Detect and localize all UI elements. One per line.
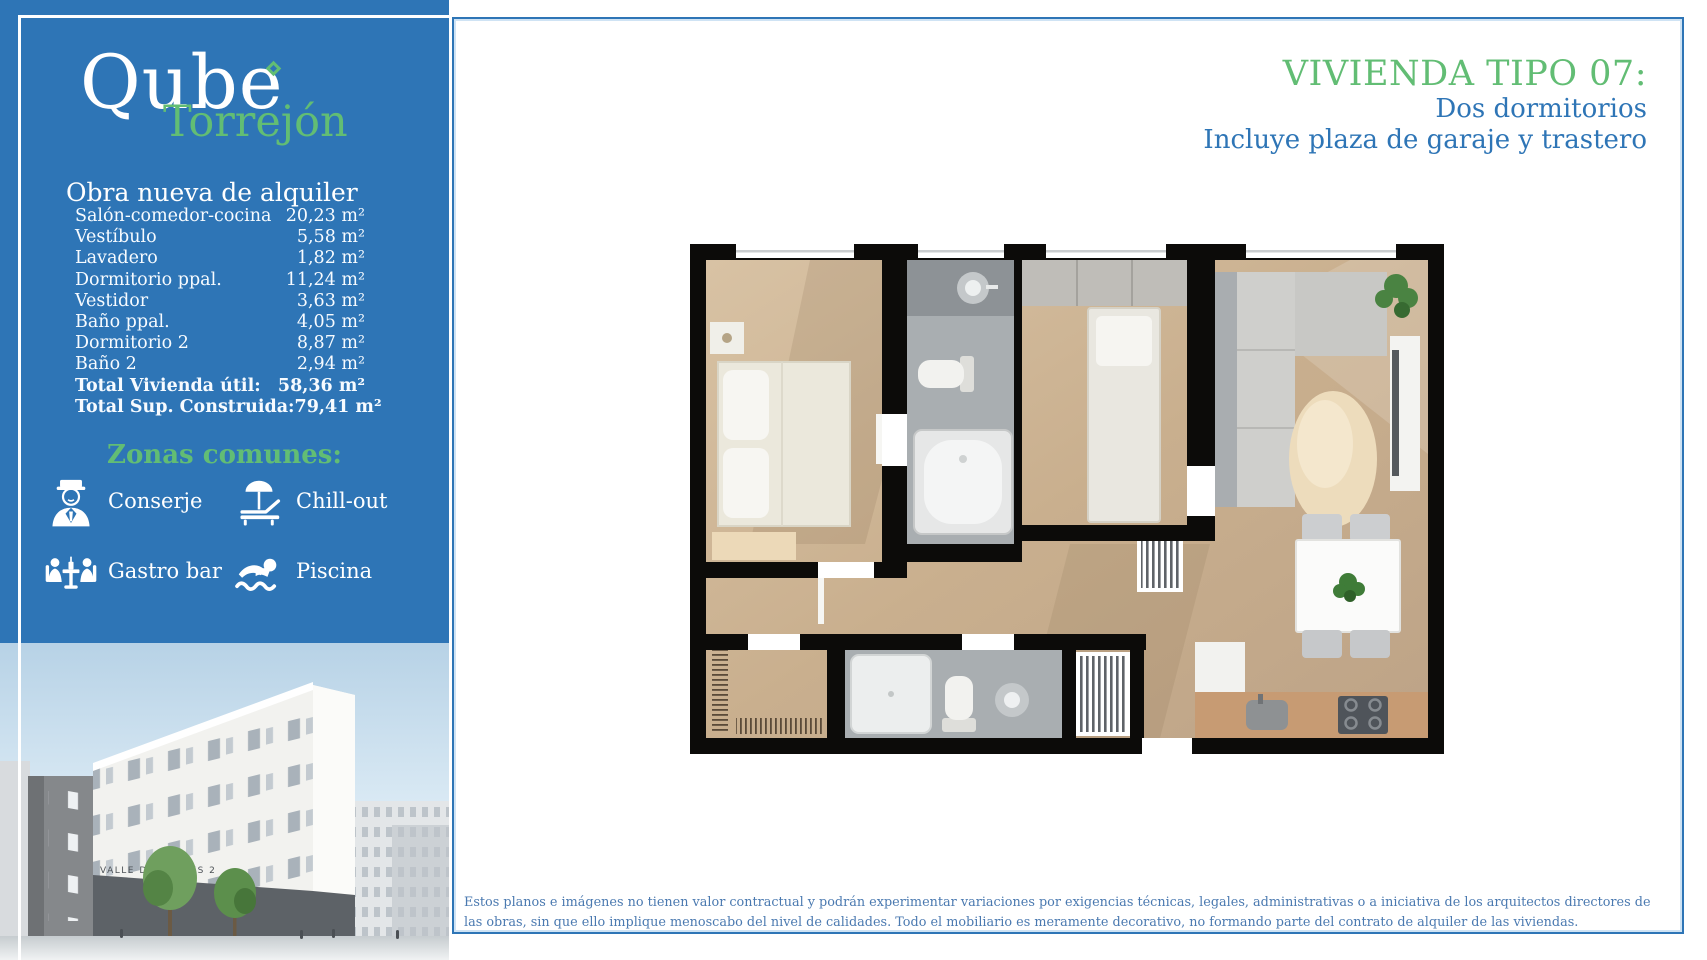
entry-door xyxy=(1142,738,1192,754)
area-value: 58,36 m² xyxy=(278,376,365,397)
area-label: Baño ppal. xyxy=(75,312,170,333)
area-value: 2,94 m² xyxy=(297,354,365,375)
area-value: 1,82 m² xyxy=(297,248,365,269)
common-zones-title: Zonas comunes: xyxy=(0,440,449,470)
legal-disclaimer: Estos planos e imágenes no tienen valor … xyxy=(464,893,1672,934)
area-value: 11,24 m² xyxy=(286,270,365,291)
concierge-icon xyxy=(44,474,98,528)
table-row-total-built: Total Sup. Construida: 79,41 m² xyxy=(75,397,365,418)
zone-label: Piscina xyxy=(296,559,372,583)
table-row-total-util: Total Vivienda útil: 58,36 m² xyxy=(75,376,365,397)
table-row: Salón-comedor-cocina 20,23 m² xyxy=(75,206,365,227)
area-label: Lavadero xyxy=(75,248,158,269)
sidebar-frame-line-left xyxy=(18,15,21,960)
zone-item-conserje: Conserje xyxy=(44,472,232,530)
zone-item-chillout: Chill-out xyxy=(232,472,412,530)
table-row: Vestidor 3,63 m² xyxy=(75,291,365,312)
zone-label: Chill-out xyxy=(296,489,387,513)
panel-header: VIVIENDA TIPO 07: Dos dormitorios Incluy… xyxy=(1203,55,1647,156)
area-value: 79,41 m² xyxy=(295,397,382,418)
dark-building xyxy=(28,776,93,938)
pillow xyxy=(723,370,769,440)
zone-label: Gastro bar xyxy=(108,559,222,583)
swimmer-icon xyxy=(232,544,286,598)
chair xyxy=(1302,630,1342,658)
zone-item-gastrobar: Gastro bar xyxy=(44,542,232,600)
sidebar: Qube Torrejón Obra nueva de alquiler Sal… xyxy=(0,0,449,643)
area-label: Total Vivienda útil: xyxy=(75,376,261,397)
table-row: Vestíbulo 5,58 m² xyxy=(75,227,365,248)
wardrobe xyxy=(1022,260,1187,306)
sofa-arm xyxy=(1295,272,1387,356)
building-render-photo: VALLE DE AMBLES 2 xyxy=(0,643,449,960)
pillow xyxy=(1096,316,1152,366)
area-label: Dormitorio 2 xyxy=(75,333,189,354)
main-panel: VIVIENDA TIPO 07: Dos dormitorios Incluy… xyxy=(452,17,1684,934)
table-row: Dormitorio 2 8,87 m² xyxy=(75,333,365,354)
area-value: 3,63 m² xyxy=(297,291,365,312)
area-label: Salón-comedor-cocina xyxy=(75,206,271,227)
area-value: 20,23 m² xyxy=(286,206,365,227)
toilet xyxy=(942,718,976,732)
building-render-illustration: VALLE DE AMBLES 2 xyxy=(0,643,449,960)
areas-table: Salón-comedor-cocina 20,23 m² Vestíbulo … xyxy=(75,206,365,418)
common-zones-grid: Conserje Chill-out xyxy=(44,472,424,600)
subtitle-bedrooms: Dos dormitorios xyxy=(1203,94,1647,125)
zone-item-piscina: Piscina xyxy=(232,542,412,600)
chair xyxy=(1350,514,1390,542)
page-title: VIVIENDA TIPO 07: xyxy=(1203,55,1647,94)
area-value: 5,58 m² xyxy=(297,227,365,248)
floor-plan xyxy=(690,244,1444,754)
area-label: Baño 2 xyxy=(75,354,137,375)
area-label: Vestíbulo xyxy=(75,227,157,248)
brochure-page: Qube Torrejón Obra nueva de alquiler Sal… xyxy=(0,0,1707,960)
road xyxy=(0,936,449,960)
windows xyxy=(736,244,1396,258)
sidebar-frame-line-top xyxy=(18,15,449,18)
kitchen-counter xyxy=(1195,692,1428,738)
sunlounger-icon xyxy=(232,474,286,528)
table-row: Baño 2 2,94 m² xyxy=(75,354,365,375)
laundry-unit xyxy=(1076,652,1130,736)
dresser xyxy=(712,532,796,560)
pillow xyxy=(723,448,769,518)
subtitle-garage: Incluye plaza de garaje y trastero xyxy=(1203,125,1647,156)
chair xyxy=(1350,630,1390,658)
table-row: Baño ppal. 4,05 m² xyxy=(75,312,365,333)
bathroom-2 xyxy=(845,650,1062,738)
tv xyxy=(1392,350,1399,476)
table-row: Lavadero 1,82 m² xyxy=(75,248,365,269)
area-value: 4,05 m² xyxy=(297,312,365,333)
area-label: Total Sup. Construida: xyxy=(75,397,295,418)
brand-location: Torrejón xyxy=(163,101,348,144)
chair xyxy=(1302,514,1342,542)
zone-label: Conserje xyxy=(108,489,202,513)
area-label: Dormitorio ppal. xyxy=(75,270,222,291)
table-row: Dormitorio ppal. 11,24 m² xyxy=(75,270,365,291)
gastrobar-icon xyxy=(44,544,98,598)
bathroom-1 xyxy=(907,260,1014,544)
brand-tagline: Obra nueva de alquiler xyxy=(66,180,358,205)
area-value: 8,87 m² xyxy=(297,333,365,354)
kitchen-sink xyxy=(1246,700,1288,730)
kitchen-cabinet xyxy=(1195,642,1245,692)
area-label: Vestidor xyxy=(75,291,148,312)
